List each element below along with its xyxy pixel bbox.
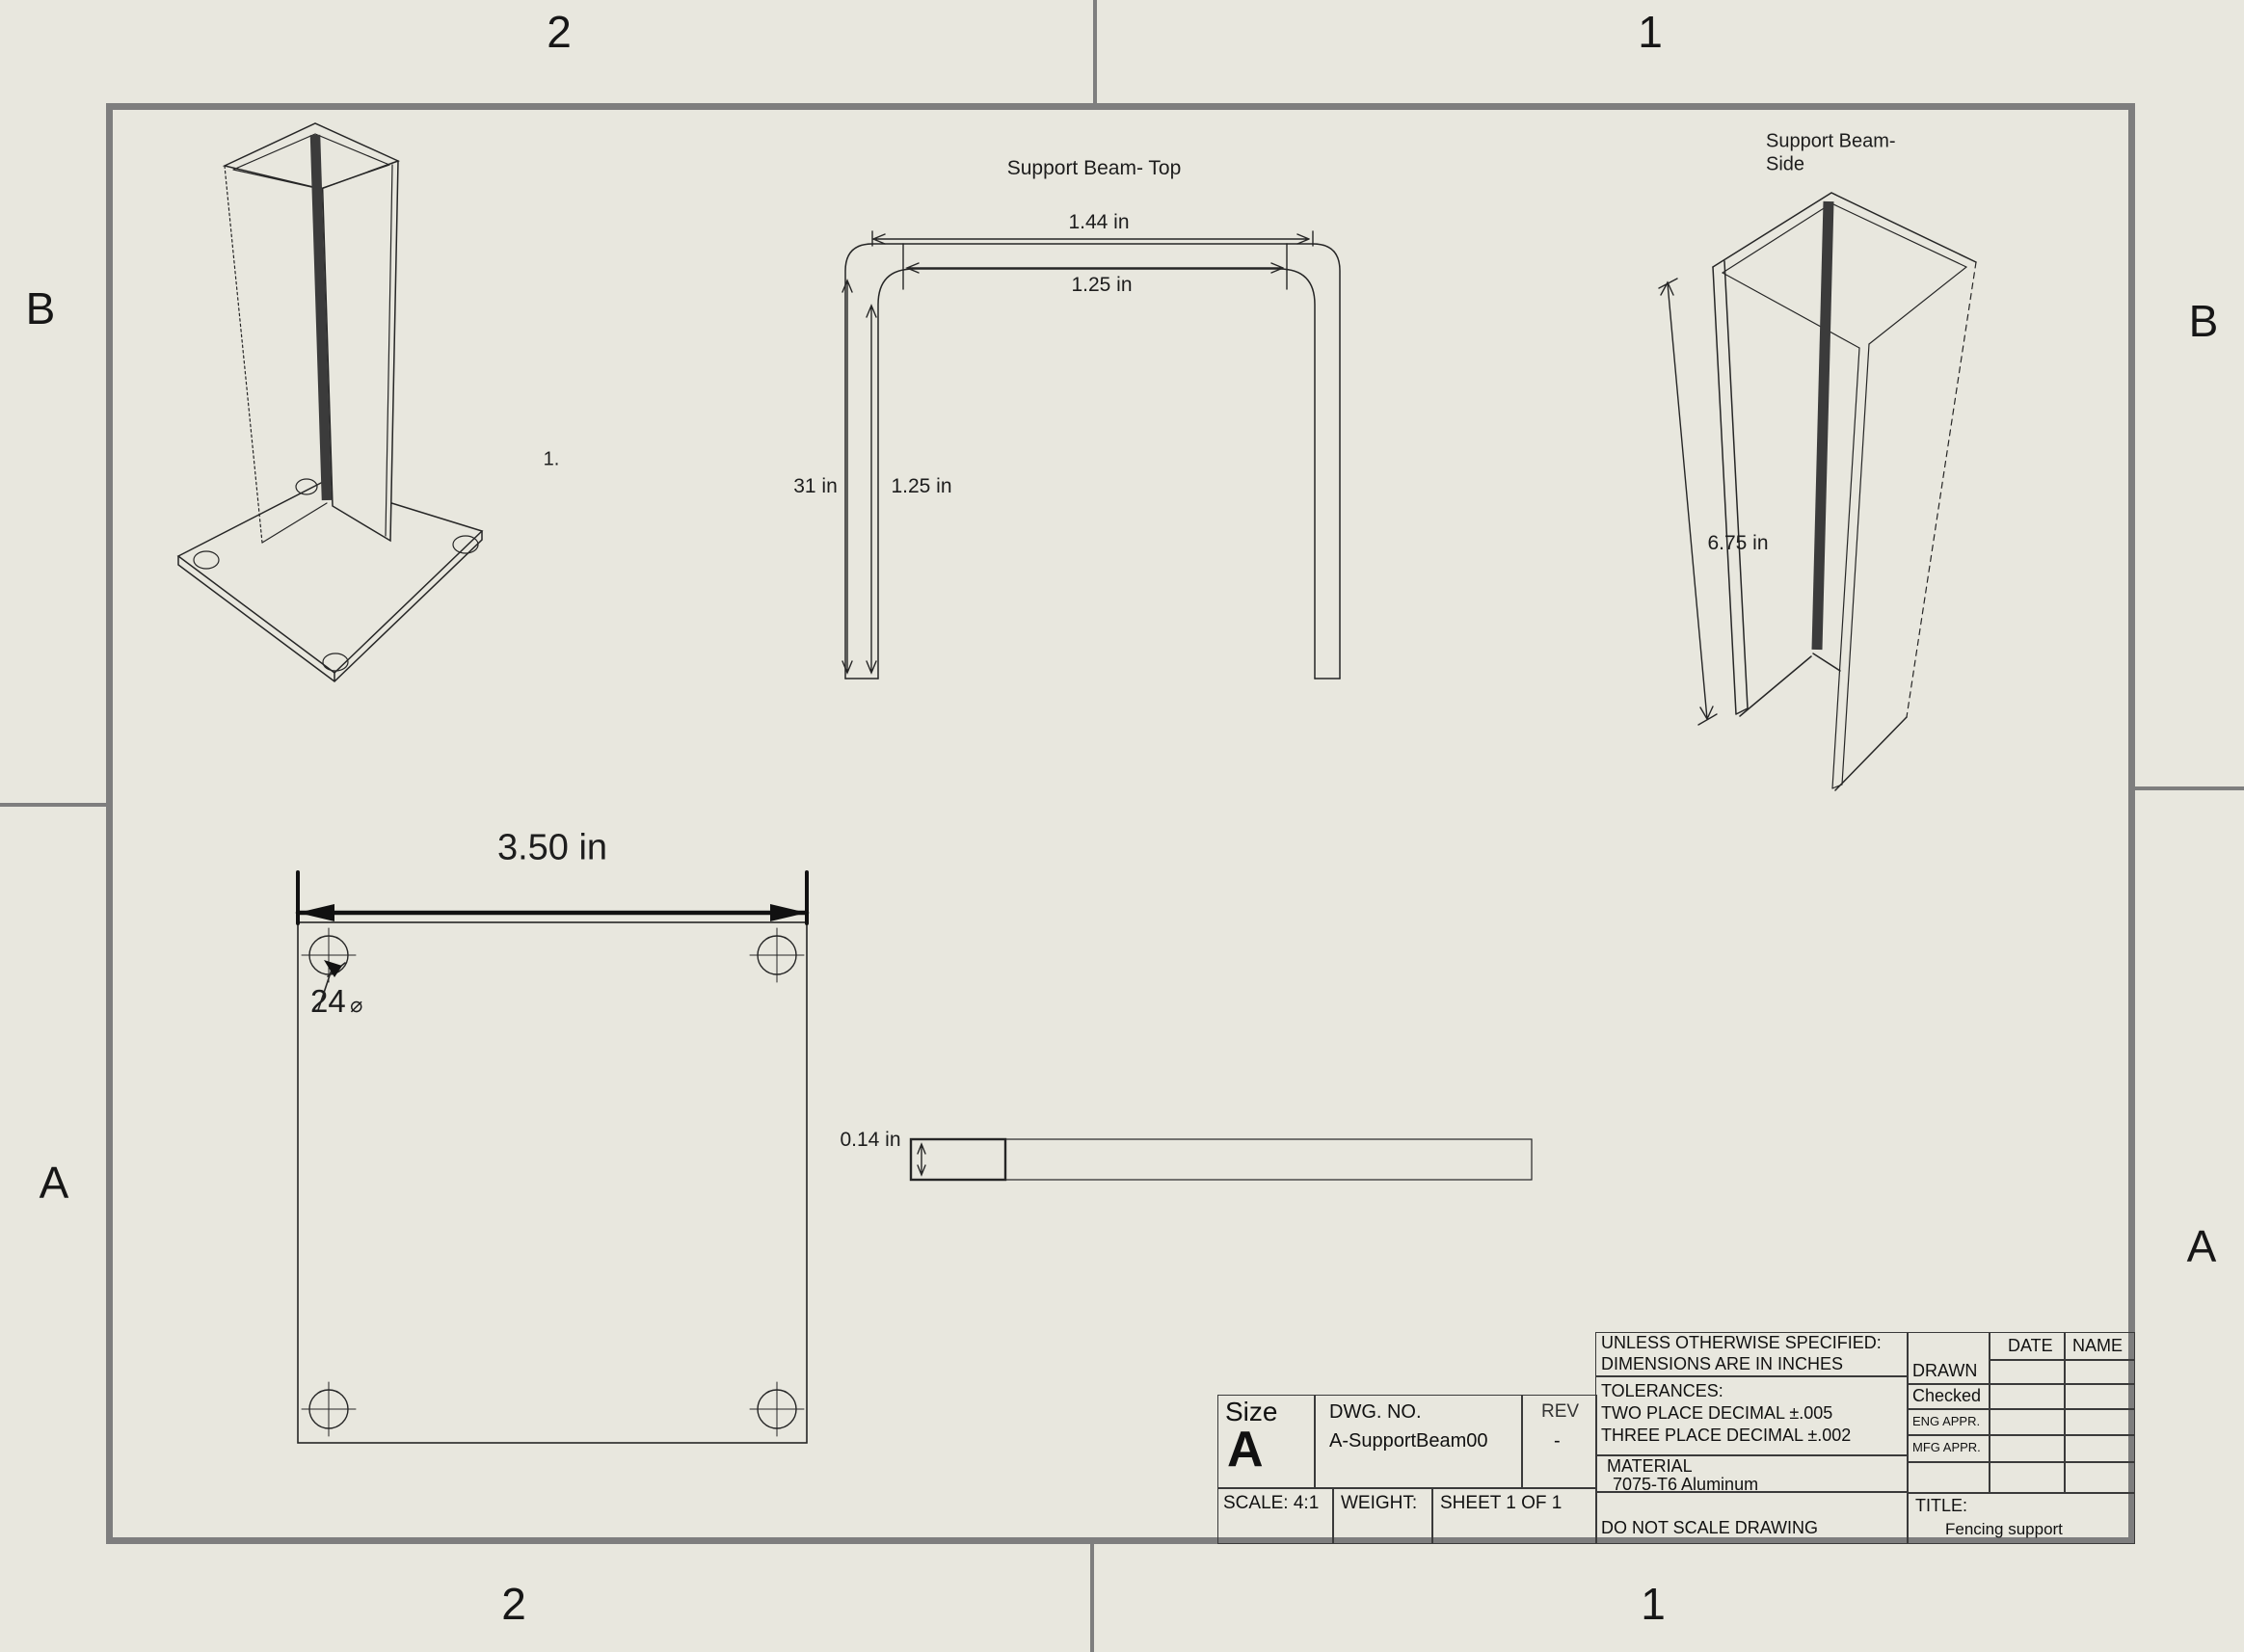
side-height-label: 6.75 in [1707,532,1768,555]
rev-label: REV [1541,1401,1579,1423]
titleblock-tolerance-box: TOLERANCES: TWO PLACE DECIMAL ±.005 THRE… [1595,1376,1908,1455]
titleblock-size-box: Size A [1217,1395,1315,1488]
top-view-title: Support Beam- Top [1007,157,1182,180]
titleblock-sheet-box: SHEET 1 OF 1 [1432,1488,1597,1544]
weight-label: WEIGHT: [1341,1493,1417,1514]
rev-value: - [1554,1430,1561,1452]
title-label: TITLE: [1915,1496,1967,1516]
tolerances-line2: TWO PLACE DECIMAL ±.005 [1601,1403,1832,1424]
dim-outer-width-label: 1.44 in [1068,211,1129,234]
do-not-scale-text: DO NOT SCALE DRAWING [1601,1518,1818,1538]
approvals-row-mfg-appr: MFG APPR. [1912,1440,1981,1454]
tolerances-line3: THREE PLACE DECIMAL ±.002 [1601,1426,1851,1446]
plate-width-label: 3.50 in [497,828,607,869]
approvals-row-drawn: DRAWN [1912,1361,1977,1381]
scale-value: SCALE: 4:1 [1223,1493,1319,1514]
dwg-label: DWG. NO. [1329,1401,1422,1424]
tolerances-line1: TOLERANCES: [1601,1381,1723,1401]
side-view-title-line2: Side [1766,154,1804,176]
approvals-row-divider-header [1989,1359,2135,1361]
titleblock-title-box: TITLE: Fencing support [1908,1493,2135,1544]
title-value: Fencing support [1945,1520,2063,1539]
titleblock-weight-box: WEIGHT: [1333,1488,1432,1544]
iso-view-callout: 1. [544,449,560,471]
dim-inner-height-label: 1.25 in [891,475,951,498]
titleblock-donotscale-box: DO NOT SCALE DRAWING [1595,1492,1908,1544]
approvals-row-divider-1 [1909,1383,2134,1385]
titleblock-rev-box: REV - [1522,1395,1597,1488]
titleblock-dwg-box: DWG. NO. A-SupportBeam00 [1315,1395,1522,1488]
diameter-icon: ⌀ [350,993,362,1017]
side-view-title-line1: Support Beam- [1766,131,1896,153]
date-header: DATE [2008,1336,2053,1356]
name-header: NAME [2072,1336,2123,1356]
sheet-value: SHEET 1 OF 1 [1440,1493,1562,1514]
approvals-row-eng-appr: ENG APPR. [1912,1414,1980,1428]
approvals-row-checked: Checked [1912,1386,1981,1406]
hole-callout-value: 24 [310,983,346,1019]
approvals-col-divider-1 [1989,1333,1990,1492]
edge-thickness-label: 0.14 in [840,1129,900,1152]
dim-inner-width-label: 1.25 in [1071,274,1132,297]
size-value: A [1227,1421,1264,1479]
approvals-row-divider-4 [1909,1461,2134,1463]
spec-line1: UNLESS OTHERWISE SPECIFIED: [1601,1333,1882,1353]
approvals-row-divider-2 [1909,1408,2134,1410]
base-plate-view [298,872,807,1443]
hole-callout: 24 ⌀ [310,983,362,1020]
iso-view [178,123,482,681]
approvals-row-divider-3 [1909,1434,2134,1436]
material-label: MATERIAL [1607,1456,1693,1477]
drawing-sheet: 2 1 2 1 B A B A [0,0,2244,1652]
spec-line2: DIMENSIONS ARE IN INCHES [1601,1354,1843,1374]
top-view [842,231,1340,679]
titleblock-approvals-table: DATE NAME DRAWN Checked ENG APPR. MFG AP… [1908,1332,2135,1493]
approvals-col-divider-2 [2064,1333,2066,1492]
titleblock-spec-box: UNLESS OTHERWISE SPECIFIED: DIMENSIONS A… [1595,1332,1908,1376]
side-view [1659,193,1976,790]
dwg-value: A-SupportBeam00 [1329,1430,1488,1452]
dim-height-label: 31 in [793,475,838,498]
titleblock-scale-box: SCALE: 4:1 [1217,1488,1333,1544]
edge-view [911,1139,1532,1180]
titleblock-material-box: MATERIAL 7075-T6 Aluminum [1595,1455,1908,1492]
